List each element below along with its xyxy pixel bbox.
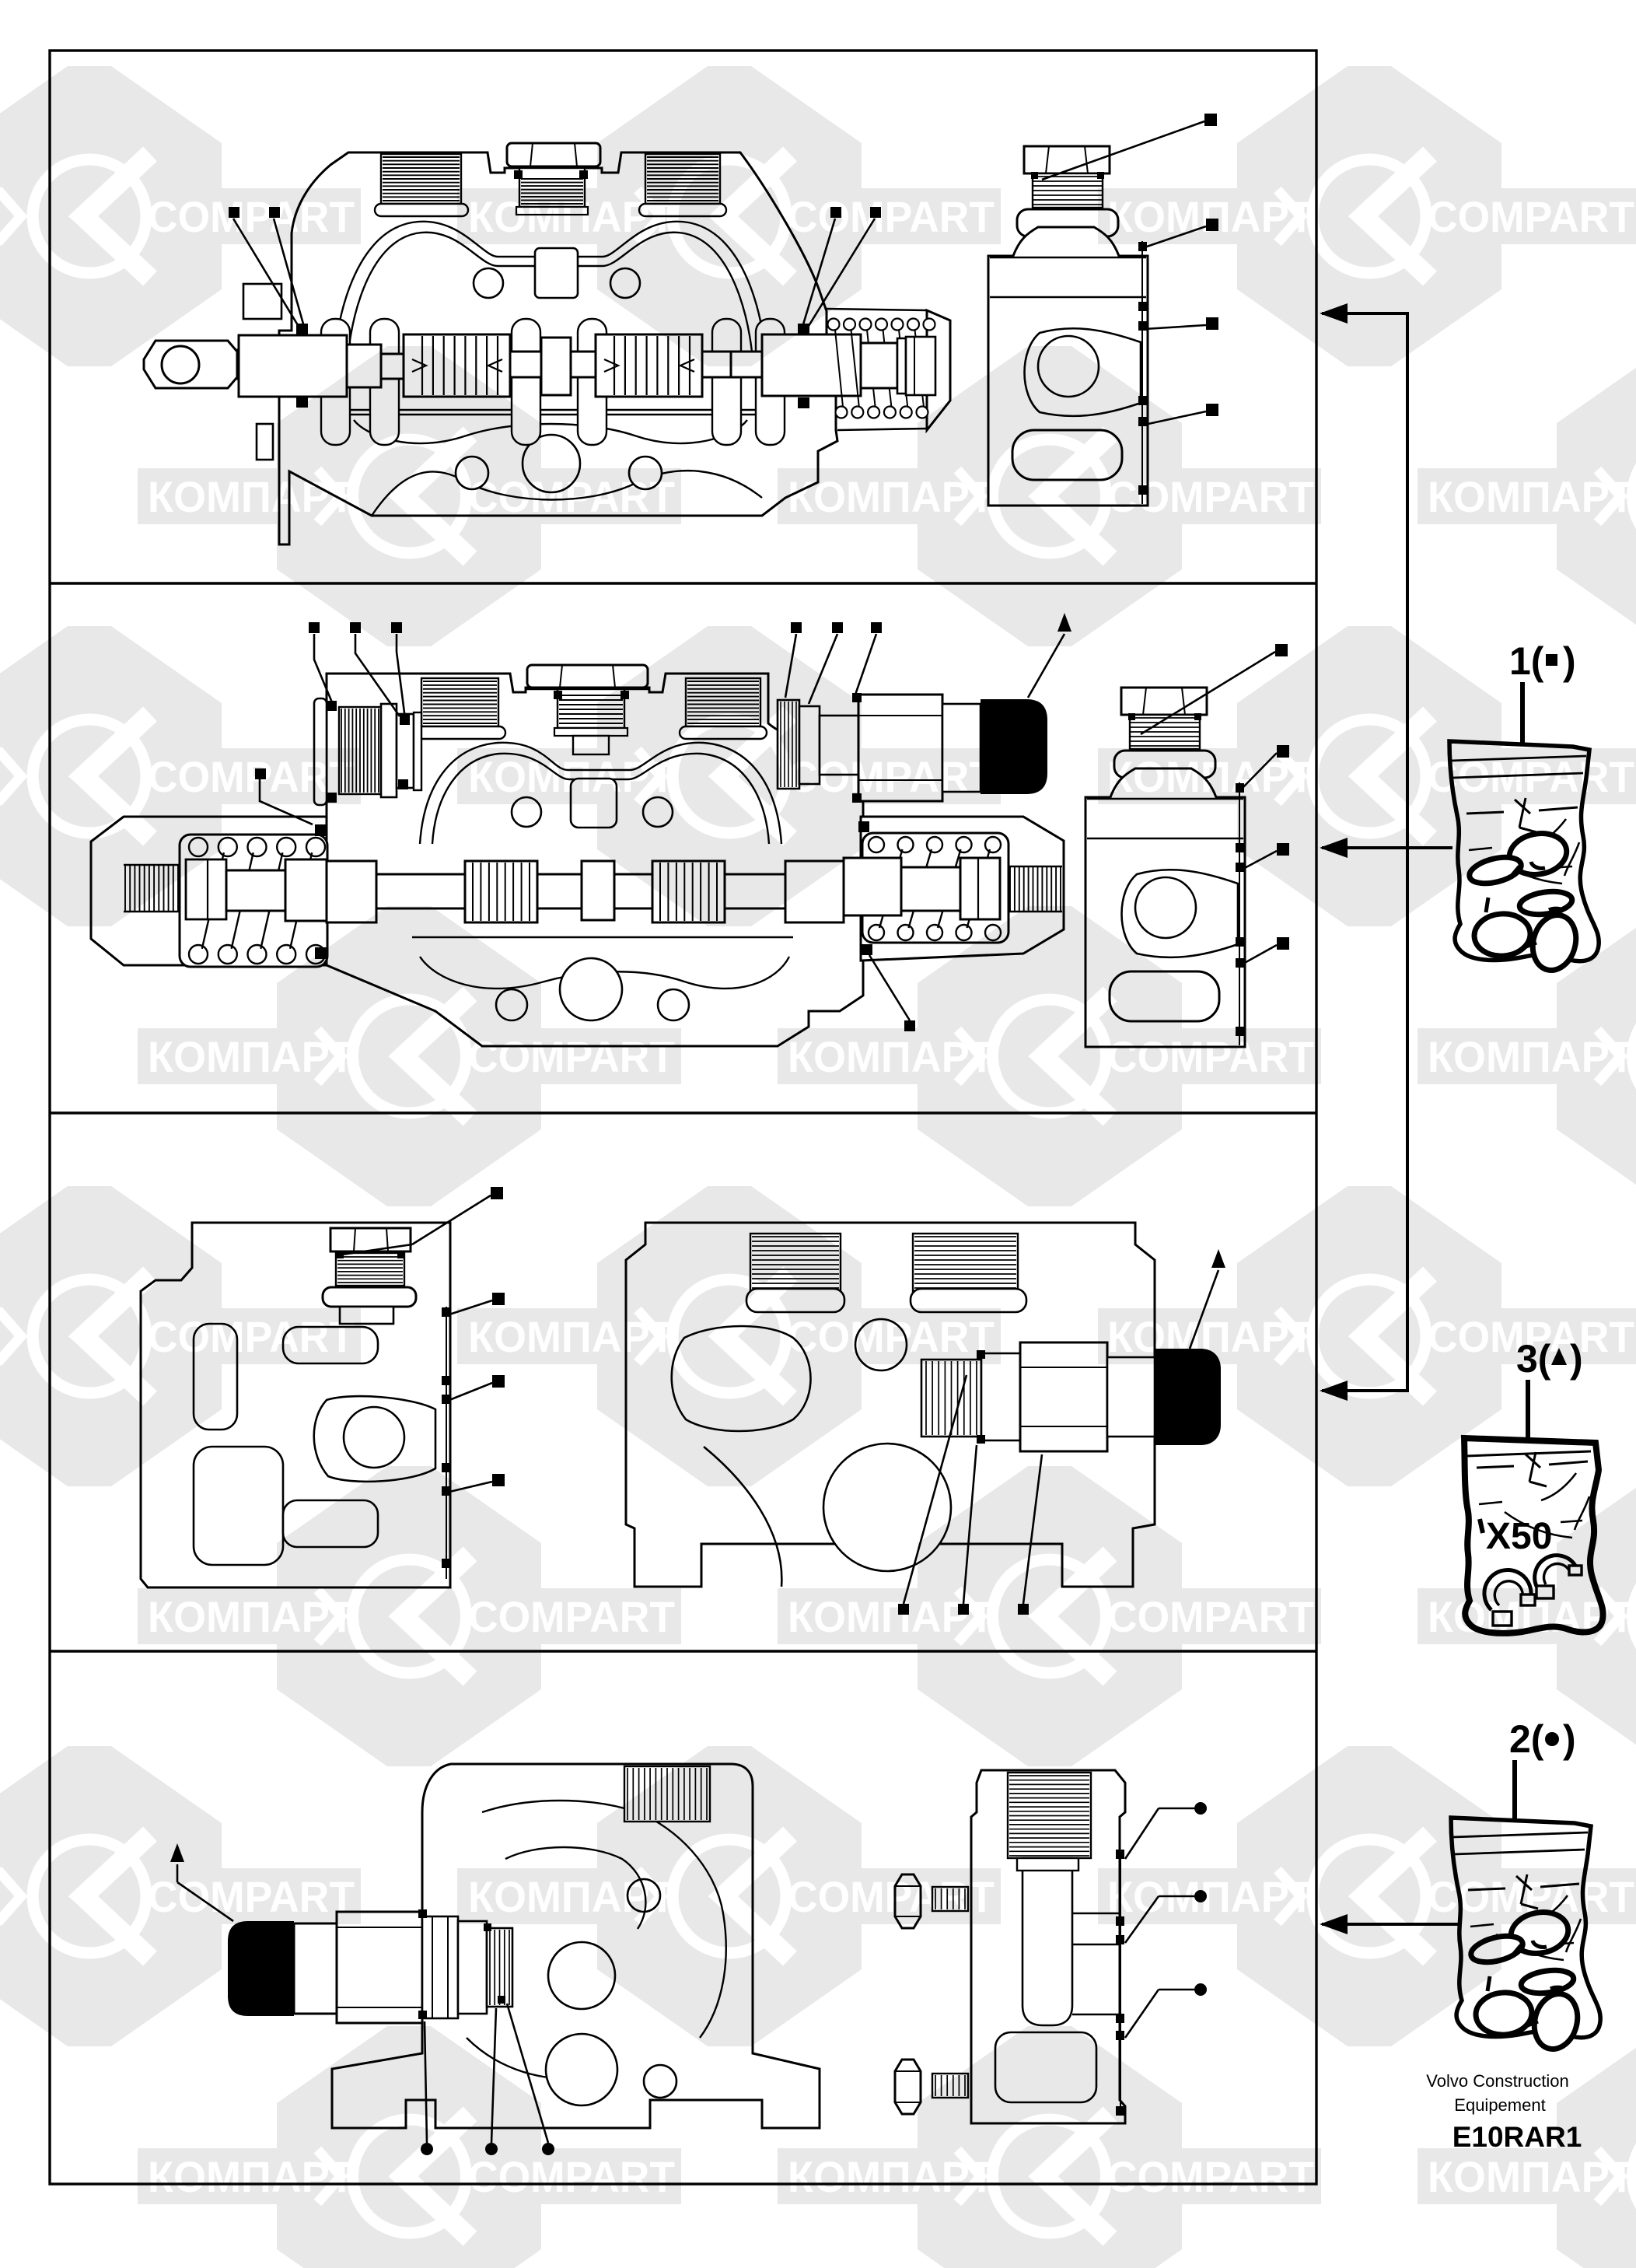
- svg-text:КОМПАРТ: КОМПАРТ: [468, 1312, 675, 1361]
- svg-text:COMPART: COMPART: [1428, 192, 1634, 241]
- svg-text:COMPART: COMPART: [468, 2152, 675, 2201]
- svg-text:КОМПАРТ: КОМПАРТ: [148, 472, 355, 521]
- svg-text:КОМПАРТ: КОМПАРТ: [1107, 1312, 1314, 1361]
- svg-text:COMPART: COMPART: [788, 192, 995, 241]
- svg-text:COMPART: COMPART: [788, 1312, 995, 1361]
- svg-text:COMPART: COMPART: [788, 752, 995, 801]
- svg-text:): ): [1563, 639, 1576, 683]
- svg-text:КОМПАРТ: КОМПАРТ: [788, 1592, 995, 1641]
- svg-text:COMPART: COMPART: [1428, 752, 1634, 801]
- svg-text:COMPART: COMPART: [468, 472, 675, 521]
- svg-text:КОМПАРТ: КОМПАРТ: [468, 752, 675, 801]
- svg-text:COMPART: COMPART: [148, 752, 355, 801]
- svg-text:COMPART: COMPART: [1107, 472, 1314, 521]
- svg-text:КОМПАРТ: КОМПАРТ: [148, 1032, 355, 1081]
- svg-text:КОМПАРТ: КОМПАРТ: [1107, 752, 1314, 801]
- svg-text:КОМПАРТ: КОМПАРТ: [788, 1032, 995, 1081]
- svg-text:КОМПАРТ: КОМПАРТ: [1428, 472, 1634, 521]
- svg-text:КОМПАРТ: КОМПАРТ: [148, 2152, 355, 2201]
- svg-text:COMPART: COMPART: [468, 1592, 675, 1641]
- svg-text:1(: 1(: [1509, 639, 1544, 683]
- svg-text:КОМПАРТ: КОМПАРТ: [1107, 192, 1314, 241]
- svg-text:COMPART: COMPART: [1107, 1592, 1314, 1641]
- svg-text:): ): [1563, 1717, 1576, 1761]
- svg-text:COMPART: COMPART: [1428, 1872, 1634, 1921]
- svg-text:COMPART: COMPART: [1428, 1312, 1634, 1361]
- svg-text:Equipement: Equipement: [1454, 2095, 1545, 2115]
- svg-text:КОМПАРТ: КОМПАРТ: [1428, 1592, 1634, 1641]
- svg-text:COMPART: COMPART: [468, 1032, 675, 1081]
- svg-text:КОМПАРТ: КОМПАРТ: [788, 472, 995, 521]
- svg-text:КОМПАРТ: КОМПАРТ: [788, 2152, 995, 2201]
- svg-text:COMPART: COMPART: [788, 1872, 995, 1921]
- svg-text:КОМПАРТ: КОМПАРТ: [1428, 2152, 1634, 2201]
- svg-text:COMPART: COMPART: [1107, 1032, 1314, 1081]
- svg-text:COMPART: COMPART: [1107, 2152, 1314, 2201]
- svg-text:2(: 2(: [1509, 1717, 1544, 1761]
- svg-text:КОМПАРТ: КОМПАРТ: [468, 192, 675, 241]
- svg-text:COMPART: COMPART: [148, 1312, 355, 1361]
- svg-text:Volvo Construction: Volvo Construction: [1426, 2071, 1568, 2091]
- svg-text:КОМПАРТ: КОМПАРТ: [1428, 1032, 1634, 1081]
- svg-text:COMPART: COMPART: [148, 1872, 355, 1921]
- svg-text:X50: X50: [1486, 1516, 1552, 1557]
- svg-text:КОМПАРТ: КОМПАРТ: [468, 1872, 675, 1921]
- svg-text:КОМПАРТ: КОМПАРТ: [148, 1592, 355, 1641]
- svg-text:COMPART: COMPART: [148, 192, 355, 241]
- svg-text:КОМПАРТ: КОМПАРТ: [1107, 1872, 1314, 1921]
